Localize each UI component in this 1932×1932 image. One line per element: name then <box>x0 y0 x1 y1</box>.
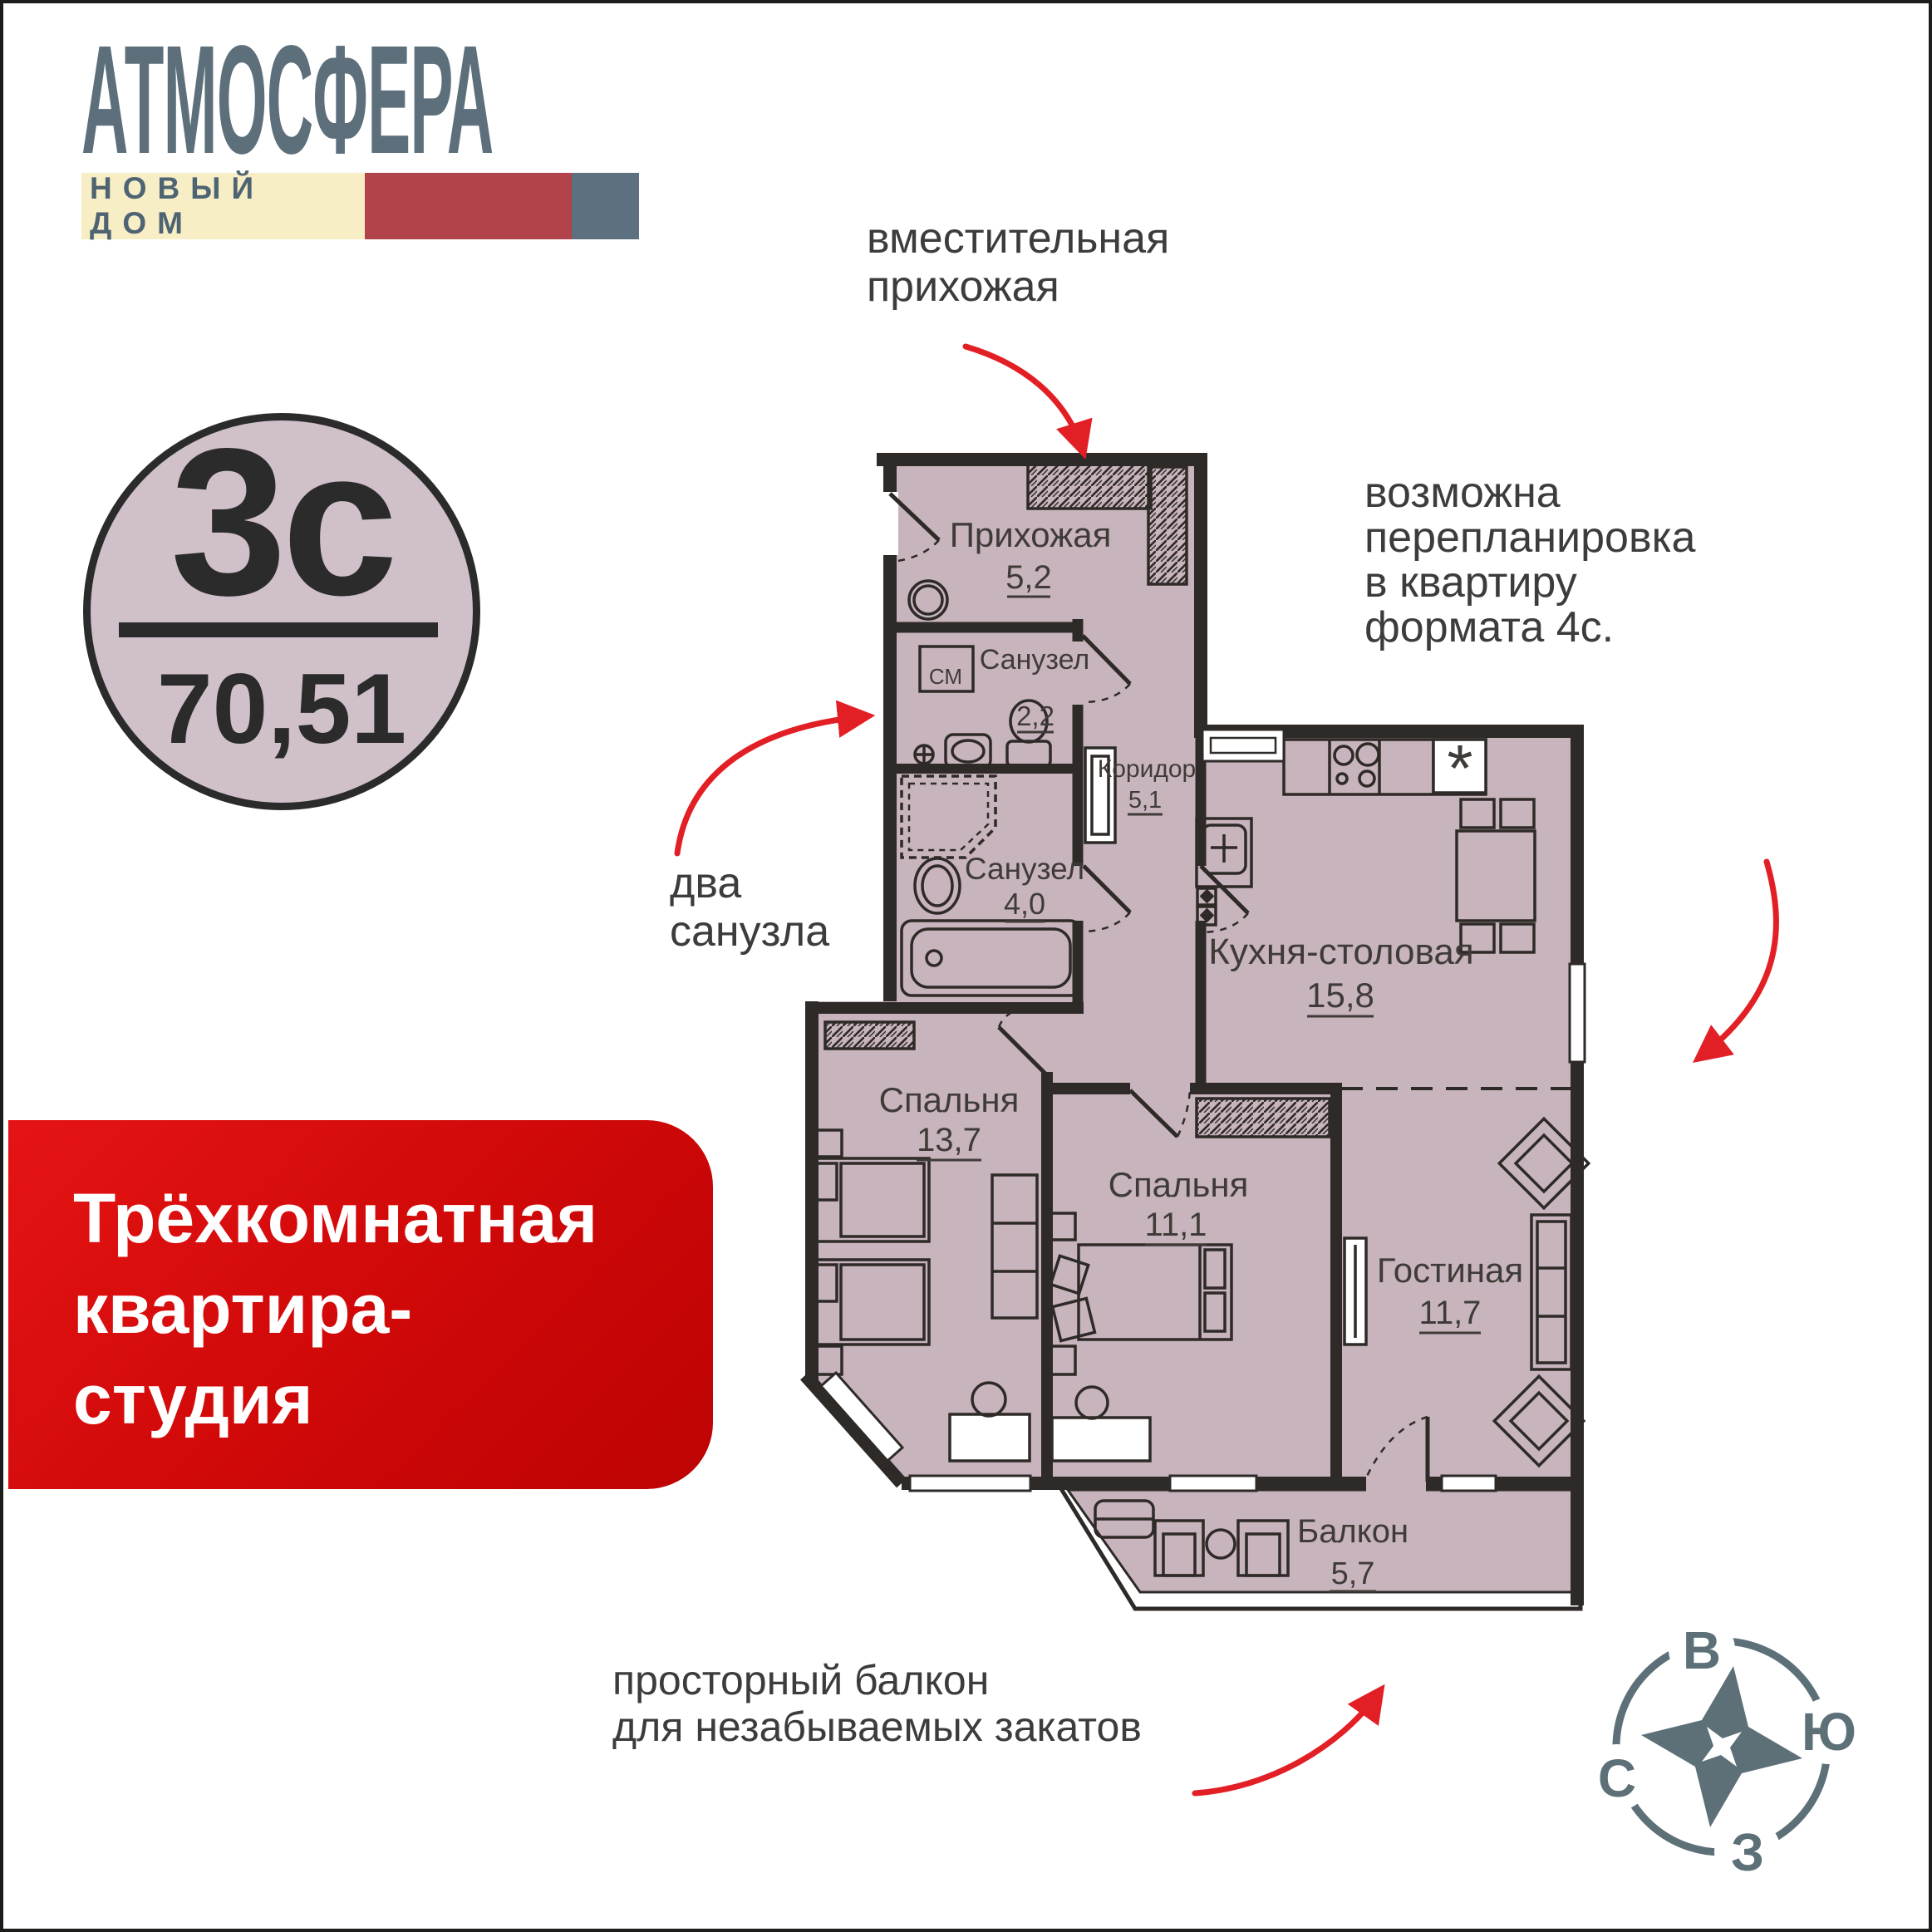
room-area: 5,7 <box>1331 1556 1375 1591</box>
window-icon <box>910 1476 1030 1491</box>
arrow-icon <box>1195 1692 1379 1793</box>
compass-west: З <box>1731 1822 1764 1882</box>
wardrobe-icon <box>1028 463 1151 509</box>
room-name: Гостиная <box>1377 1251 1523 1290</box>
wardrobe-icon <box>825 1022 914 1049</box>
compass-north: С <box>1598 1748 1636 1808</box>
room-area: 5,2 <box>1005 559 1052 596</box>
room-name: Коридор <box>1098 755 1196 783</box>
room-area: 5,1 <box>1128 787 1162 814</box>
arrow-icon <box>677 716 866 853</box>
compass-east: В <box>1683 1620 1721 1680</box>
room-area: 11,1 <box>1145 1207 1207 1243</box>
fridge-symbol: * <box>1447 731 1472 805</box>
room-name: Балкон <box>1297 1513 1408 1550</box>
room-area: 4,0 <box>1004 887 1045 921</box>
window-icon <box>1170 1476 1256 1491</box>
room-area: 11,7 <box>1419 1295 1482 1331</box>
window-icon <box>1570 964 1585 1062</box>
desk-icon <box>950 1414 1030 1461</box>
room-area: 13,7 <box>917 1122 981 1158</box>
room-area: 2,2 <box>1016 701 1054 731</box>
compass-south: Ю <box>1802 1702 1856 1762</box>
room-name: Спальня <box>1109 1165 1249 1204</box>
wardrobe-icon <box>1148 467 1187 584</box>
room-name: Прихожая <box>950 515 1112 554</box>
room-name: Спальня <box>879 1080 1020 1119</box>
room-name: Кухня-столовая <box>1208 932 1473 972</box>
wardrobe-icon <box>1197 1099 1330 1137</box>
washer-label: СМ <box>929 664 962 689</box>
floor-plan: Прихожая 5,2 СМ Санузел 2,2 Коридор 5,1 … <box>0 0 1932 1932</box>
arrow-icon <box>1700 862 1776 1057</box>
balcony-door-gap <box>1366 1475 1426 1492</box>
room-area: 15,8 <box>1306 976 1374 1015</box>
flyer-page: АТМОСФЕРА НОВЫЙ ДОМ 3с 70,51 Трёхкомнатн… <box>0 0 1932 1932</box>
arrow-icon <box>966 347 1083 450</box>
window-sill <box>1211 738 1276 753</box>
room-name: Санузел <box>980 644 1089 676</box>
room-name: Санузел <box>965 852 1084 886</box>
compass-rose-icon: В Ю С З <box>1584 1616 1862 1885</box>
desk-icon <box>1052 1418 1150 1461</box>
window-icon <box>1442 1476 1496 1491</box>
